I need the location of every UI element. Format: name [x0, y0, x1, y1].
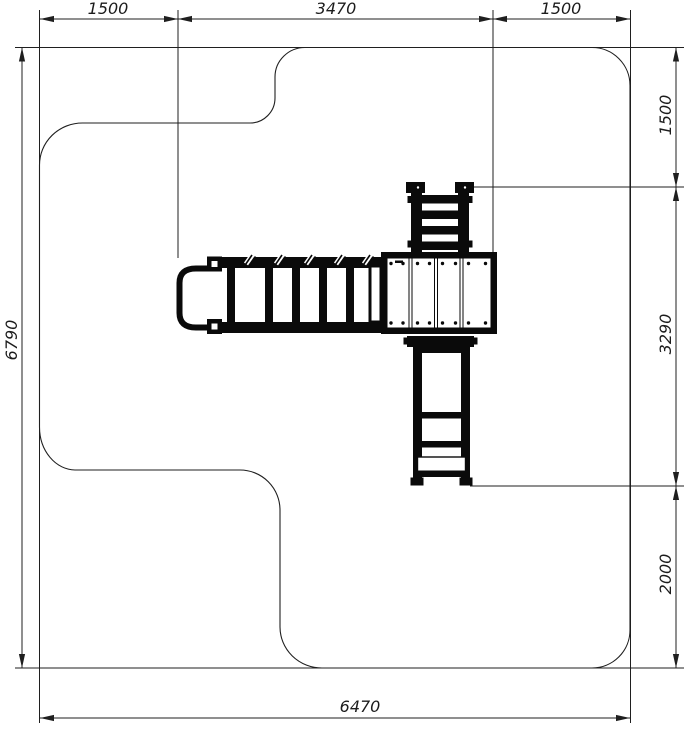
slide-exit-lip: [416, 471, 467, 478]
bolt: [484, 262, 487, 265]
dim-label-top-right: 1500: [541, 0, 582, 18]
ladder-rail: [458, 191, 469, 253]
bolt: [401, 321, 404, 324]
bolt: [467, 321, 470, 324]
bolt: [484, 321, 487, 324]
rung: [265, 266, 273, 324]
dim-label-bottom-total: 6470: [340, 697, 381, 716]
paper-background: [0, 0, 688, 731]
slide-mount-bar: [407, 336, 474, 347]
side-bolt: [404, 338, 408, 345]
bolt: [454, 262, 457, 265]
ladder-rung: [422, 195, 458, 204]
dim-label-right-top: 1500: [656, 95, 675, 136]
slide-foot: [411, 478, 424, 486]
side-bolt: [469, 241, 473, 248]
platform: [369, 252, 498, 334]
ladder-rung: [422, 242, 458, 251]
bolt: [441, 321, 444, 324]
bolt: [428, 262, 431, 265]
rung: [292, 266, 300, 324]
side-bolt: [408, 196, 412, 203]
rung: [346, 266, 354, 324]
bolt: [441, 262, 444, 265]
ladder-rung: [422, 211, 458, 220]
bolt: [428, 321, 431, 324]
ladder-rung: [422, 226, 458, 235]
rung: [227, 266, 235, 324]
cap-bolt: [464, 186, 466, 188]
site-plan-drawing: 1500 3470 1500 6790 1500 3290 2000 6470: [0, 0, 688, 731]
bolt: [454, 321, 457, 324]
cap-bolt: [417, 186, 419, 188]
rail-tick-mark: [225, 261, 234, 264]
slide-foot: [460, 478, 473, 486]
support-post-core: [212, 261, 218, 267]
ladder-rail: [411, 191, 422, 253]
ladder-cap: [406, 182, 425, 193]
support-post-core: [212, 324, 218, 330]
bolt: [389, 262, 392, 265]
bolt: [467, 262, 470, 265]
rung: [319, 266, 327, 324]
bolt: [416, 262, 419, 265]
dim-label-top-left: 1500: [88, 0, 129, 18]
side-bolt: [474, 338, 478, 345]
dim-label-top-center: 3470: [316, 0, 357, 18]
bolt: [389, 321, 392, 324]
plan-canvas: 1500 3470 1500 6790 1500 3290 2000 6470: [0, 0, 688, 731]
side-bolt: [408, 241, 412, 248]
dim-label-left-total: 6790: [2, 320, 21, 361]
entry-board: [372, 268, 380, 321]
dim-label-right-middle: 3290: [656, 314, 675, 355]
slide-cross-bar: [422, 347, 461, 353]
slide-cross-bar: [422, 412, 461, 419]
dim-label-right-bottom: 2000: [656, 554, 675, 595]
platform-deck: [388, 259, 491, 328]
slide-cross-bar: [422, 441, 461, 448]
bolt: [416, 321, 419, 324]
side-bolt: [469, 196, 473, 203]
deck-tick-mark: [395, 261, 403, 264]
